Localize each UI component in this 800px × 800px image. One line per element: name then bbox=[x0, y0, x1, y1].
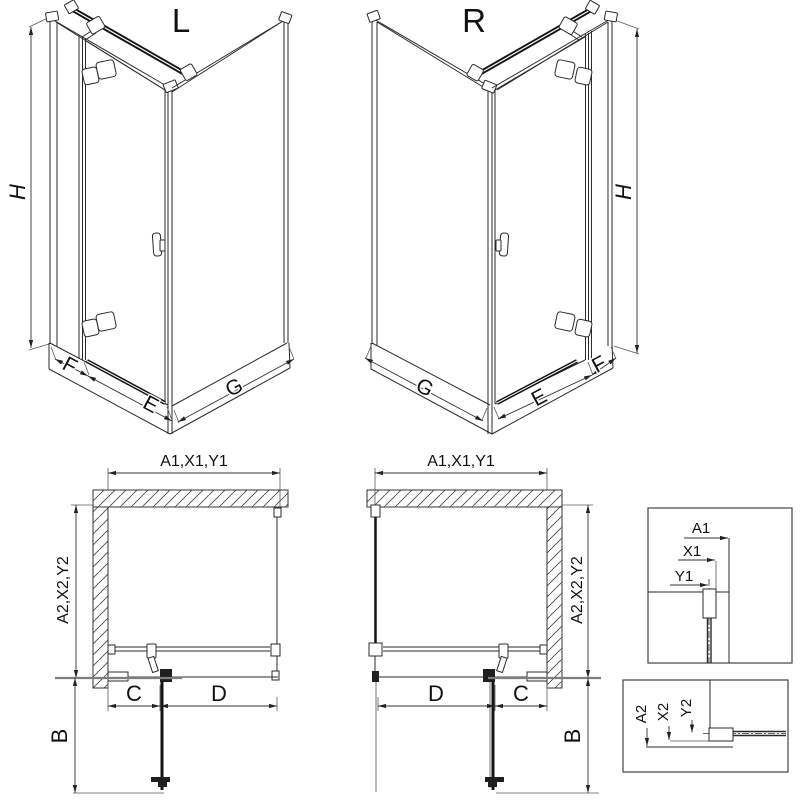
dim-label-c-left: C bbox=[126, 681, 142, 706]
dim-label-f-left: F bbox=[59, 353, 81, 379]
plan-view-left: A1,X1,Y1 A2,X2,Y2 bbox=[47, 453, 288, 793]
dimension-b-right: B bbox=[496, 678, 599, 793]
bottom-hinge-left bbox=[81, 311, 116, 337]
dim-label-y2-detail: Y2 bbox=[678, 699, 695, 717]
door-panel-right bbox=[495, 37, 585, 404]
dim-label-h-right: H bbox=[611, 184, 636, 200]
wall-profile bbox=[108, 672, 128, 681]
door-handle-plan bbox=[485, 777, 504, 782]
dimension-height-right: H bbox=[611, 19, 639, 354]
dim-label-d-right: D bbox=[428, 681, 444, 706]
dimension-c-d-left: C D bbox=[108, 681, 277, 711]
top-hinge-right bbox=[554, 59, 592, 85]
dim-label-g-right: G bbox=[412, 374, 437, 402]
top-hinge-left bbox=[81, 59, 116, 85]
detail-view-bottom: A2 X2 Y2 bbox=[623, 680, 788, 772]
door-handle-plan bbox=[151, 777, 170, 782]
wall-top-left-plan bbox=[93, 490, 288, 507]
open-door-plan-left bbox=[151, 682, 170, 790]
dim-label-a1-right: A1,X1,Y1 bbox=[427, 453, 495, 470]
dim-label-b-left: B bbox=[47, 729, 72, 744]
dimension-a2-left: A2,X2,Y2 bbox=[55, 505, 93, 678]
version-label-right: R bbox=[462, 2, 486, 39]
technical-drawing-shower-enclosure: L H bbox=[0, 0, 800, 800]
wall-side-left-plan bbox=[93, 507, 108, 688]
bar-tee-connector bbox=[499, 644, 508, 658]
post-top-cap bbox=[163, 80, 178, 93]
panel-top-cap bbox=[367, 10, 380, 22]
dim-label-g-left: G bbox=[222, 374, 247, 402]
wall-side-right-plan bbox=[547, 507, 562, 688]
side-glass-plan-right bbox=[369, 505, 382, 792]
door-pivot bbox=[483, 669, 495, 682]
bar-tee-connector bbox=[147, 644, 156, 658]
wall-top-right-plan bbox=[367, 490, 562, 507]
wall-profile bbox=[527, 672, 547, 681]
plan-view-right: A1,X1,Y1 A2,X2,Y2 bbox=[367, 453, 601, 793]
version-label-left: L bbox=[172, 2, 190, 39]
dim-label-b-right: B bbox=[560, 729, 585, 744]
bar-bracket bbox=[180, 63, 198, 81]
drawing-canvas: L H bbox=[0, 0, 800, 800]
dimension-f-e-left: F E bbox=[51, 347, 172, 421]
dim-label-h-left: H bbox=[5, 184, 30, 200]
wall-profile bbox=[703, 589, 716, 618]
detail-view-top: A1 X1 Y1 bbox=[648, 508, 792, 663]
iso-view-right: R H bbox=[365, 0, 639, 434]
panel-top-cap bbox=[604, 11, 617, 22]
dim-label-a1-left: A1,X1,Y1 bbox=[160, 453, 228, 470]
dim-label-a2-right: A2,X2,Y2 bbox=[569, 556, 586, 624]
dim-label-d-left: D bbox=[211, 681, 227, 706]
dimension-d-c-right: D C bbox=[378, 681, 547, 711]
dimension-g-right: G bbox=[365, 346, 487, 421]
dim-label-a2-detail: A2 bbox=[633, 705, 650, 723]
stabilizer-bar-plan-left bbox=[108, 644, 270, 673]
panel-top-cap bbox=[45, 11, 58, 22]
dim-label-c-right: C bbox=[513, 681, 529, 706]
dimension-e-f-right: E F bbox=[494, 347, 616, 419]
dimension-a2-right: A2,X2,Y2 bbox=[562, 505, 593, 678]
dimension-b-left: B bbox=[47, 678, 164, 793]
dim-label-e-right: E bbox=[528, 384, 551, 411]
door-pivot bbox=[160, 669, 172, 682]
dimension-g-left: G bbox=[174, 347, 294, 423]
fixed-panel-right bbox=[492, 11, 618, 346]
dim-label-y1-detail: Y1 bbox=[675, 568, 693, 585]
stabilizer-bar-plan-right bbox=[383, 644, 547, 673]
dim-label-a2-left: A2,X2,Y2 bbox=[55, 556, 72, 624]
dimension-height-left: H bbox=[5, 17, 50, 350]
wall-profile bbox=[709, 728, 733, 741]
door-panel-left bbox=[86, 41, 165, 404]
door-handle-left bbox=[152, 233, 165, 257]
door-handle-right bbox=[496, 233, 509, 257]
detail-frame bbox=[648, 508, 792, 663]
dim-label-x1-detail: X1 bbox=[683, 543, 701, 560]
iso-view-left: L H bbox=[5, 0, 294, 434]
dim-label-x2-detail: X2 bbox=[655, 703, 672, 721]
open-door-plan-right bbox=[485, 682, 504, 790]
side-glass-plan-left bbox=[271, 508, 281, 680]
bottom-hinge-right bbox=[554, 311, 592, 337]
dim-label-a1-detail: A1 bbox=[692, 520, 710, 537]
detail-frame bbox=[623, 680, 788, 772]
